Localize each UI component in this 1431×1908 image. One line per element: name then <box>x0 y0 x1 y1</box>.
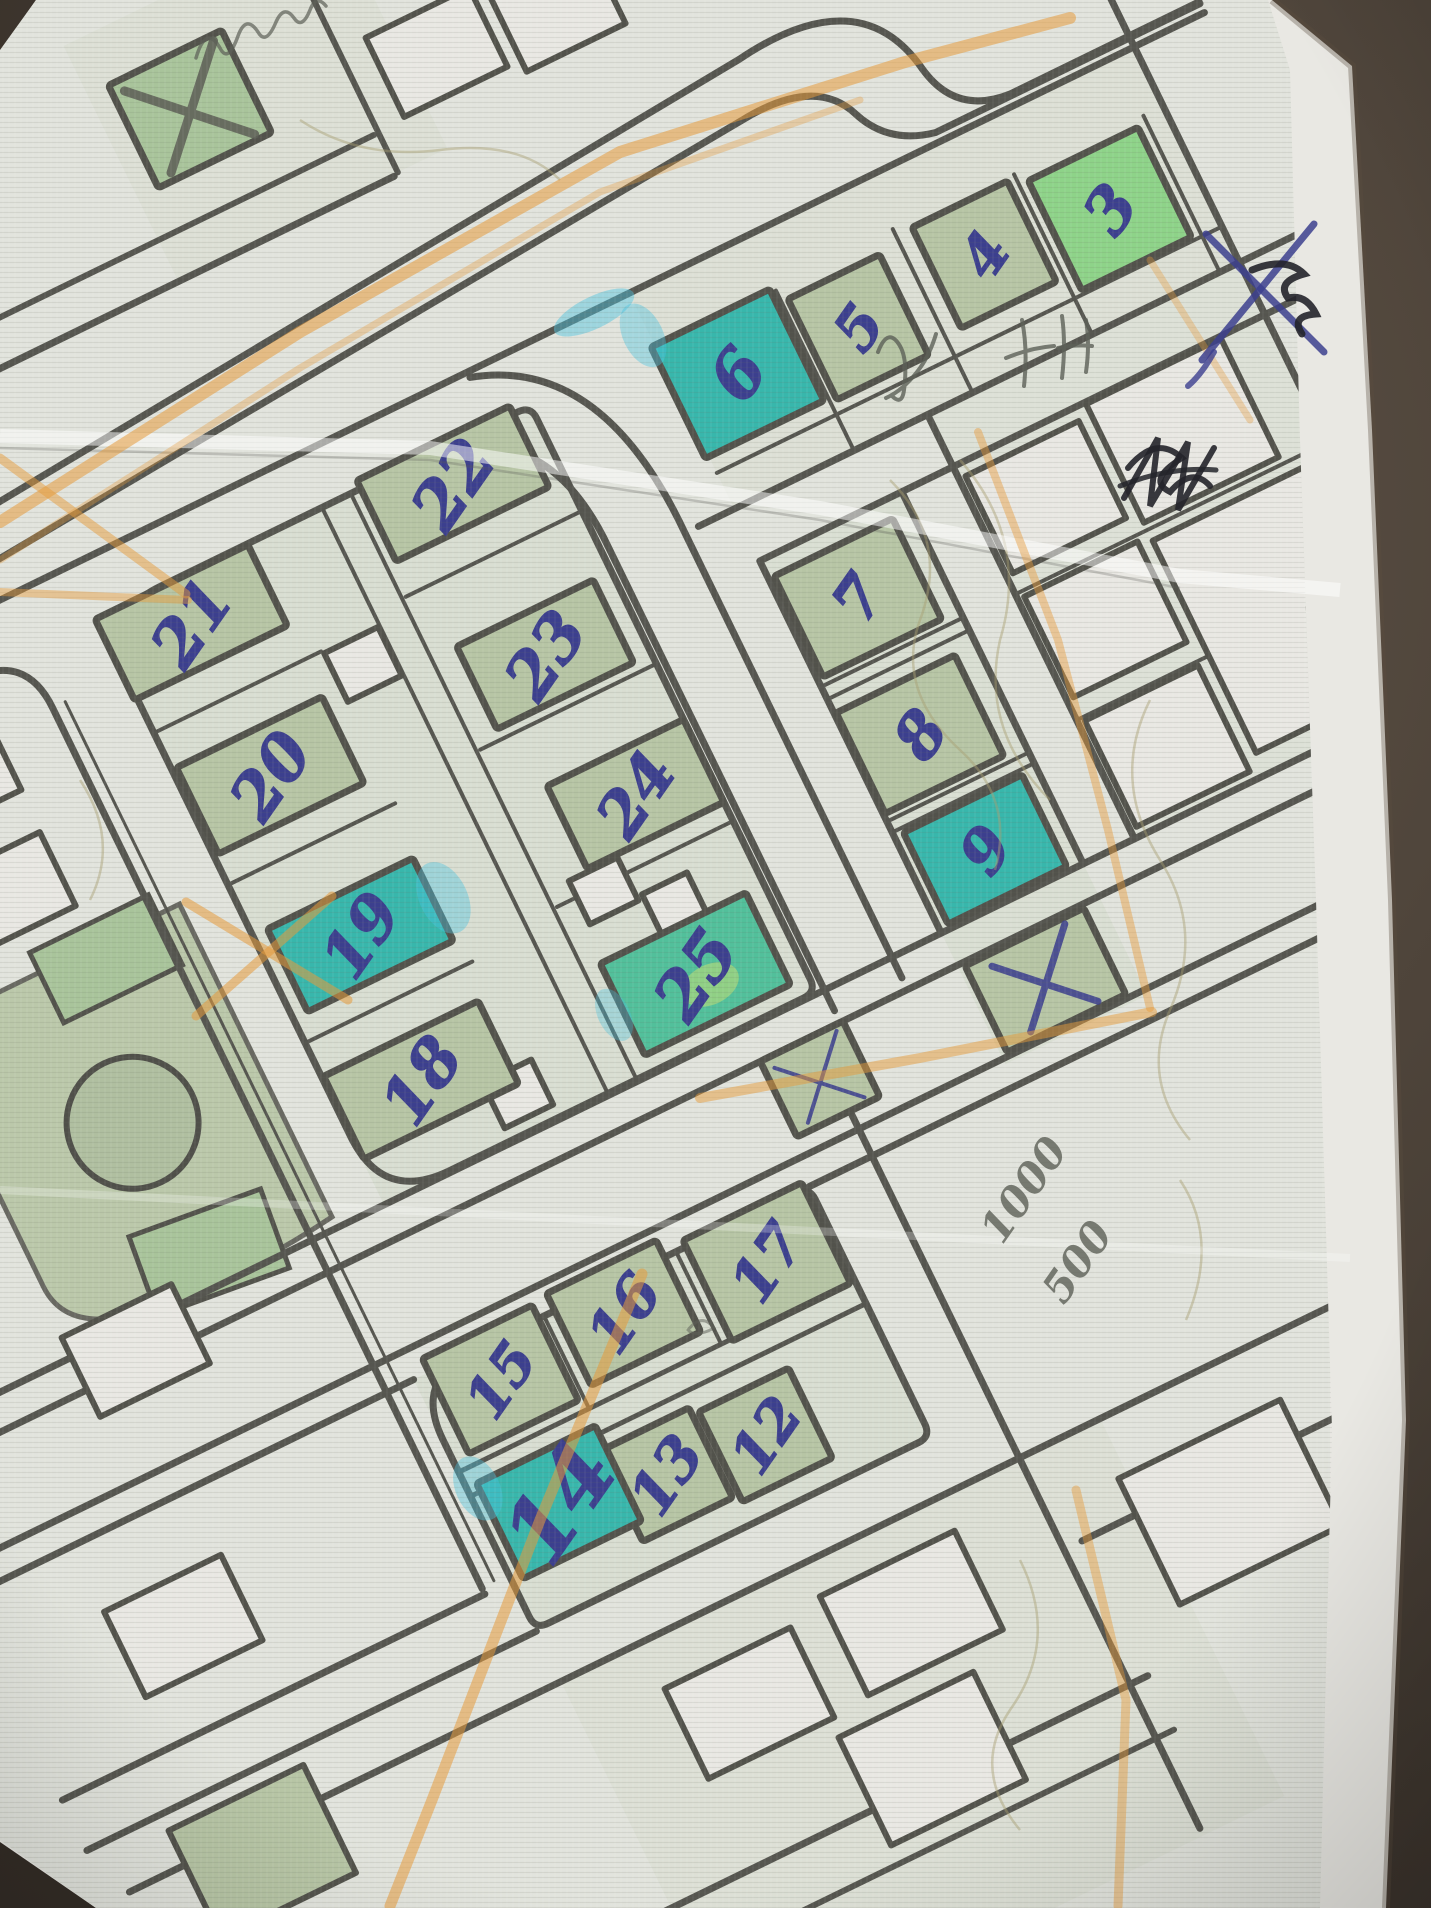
map-photo-svg: Hand-annotated printed street map photog… <box>0 0 1431 1908</box>
photo-of-annotated-map: Hand-annotated printed street map photog… <box>0 0 1431 1908</box>
vignette-overlay <box>0 0 1431 1908</box>
